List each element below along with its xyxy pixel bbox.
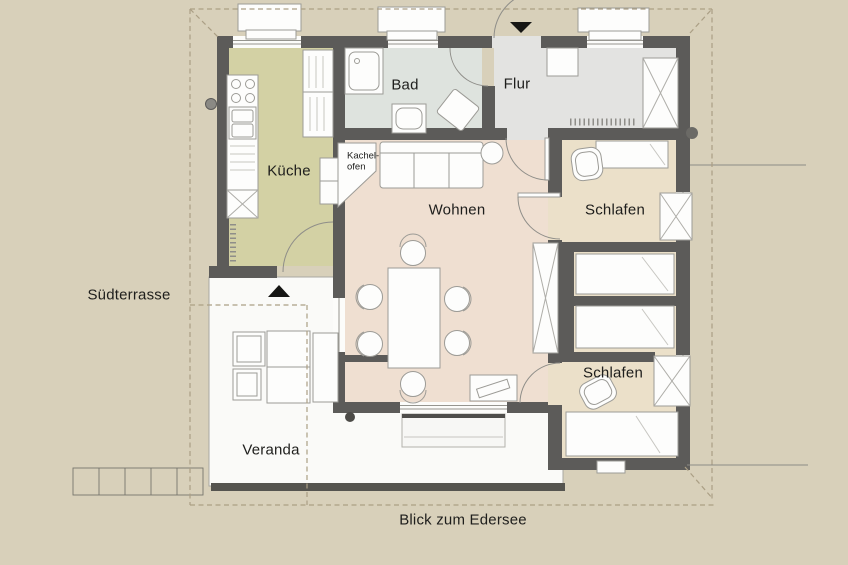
- tall-cupboard: [303, 50, 333, 137]
- entrance-door-opening: [492, 36, 541, 48]
- wohnen-terrace-door: [400, 402, 507, 413]
- room-label-kueche: Küche: [267, 163, 311, 180]
- room-label-wohnen: Wohnen: [429, 202, 486, 219]
- window-sill: [387, 31, 437, 40]
- bed: [566, 412, 678, 456]
- window-sill: [589, 31, 641, 40]
- room-label-schlafen-bottom: Schlafen: [583, 365, 643, 382]
- kachelofen-line1: Kachel-: [347, 152, 379, 163]
- niche-bed: [576, 306, 674, 348]
- floor-plan: Küche Bad Flur Wohnen Schlafen Schlafen …: [0, 0, 848, 565]
- entrance-door-swing: [494, 0, 541, 38]
- side-table: [481, 142, 503, 164]
- label-blick-zum-edersee: Blick zum Edersee: [399, 512, 527, 529]
- sofa: [380, 142, 483, 188]
- niche-bed: [576, 254, 674, 294]
- garden-path: [73, 468, 203, 495]
- window-box: [578, 8, 649, 32]
- room-label-flur: Flur: [504, 76, 531, 93]
- exterior-step: [597, 461, 625, 473]
- kachelofen-line2: ofen: [347, 162, 379, 173]
- label-suedterrasse: Südterrasse: [87, 287, 170, 304]
- label-veranda: Veranda: [242, 442, 299, 459]
- window-boxes: [238, 4, 649, 40]
- entrance-arrow-north: [510, 22, 532, 33]
- room-label-bad: Bad: [391, 77, 418, 94]
- door-leaf: [545, 138, 549, 180]
- flur-cabinet: [547, 48, 578, 76]
- window-sill: [246, 30, 296, 39]
- dining-table: [388, 268, 440, 368]
- veranda-table: [313, 333, 338, 402]
- veranda-front-edge: [211, 483, 565, 491]
- door-leaf: [518, 193, 560, 197]
- terrace-step: [402, 414, 505, 447]
- room-label-schlafen-top: Schlafen: [585, 202, 645, 219]
- room-label-kachelofen: Kachel- ofen: [347, 152, 379, 173]
- veranda-chair: [233, 332, 265, 366]
- floor-plan-drawing: [0, 0, 848, 565]
- shower: [345, 48, 383, 94]
- window-box: [238, 4, 301, 31]
- window-box: [378, 7, 445, 32]
